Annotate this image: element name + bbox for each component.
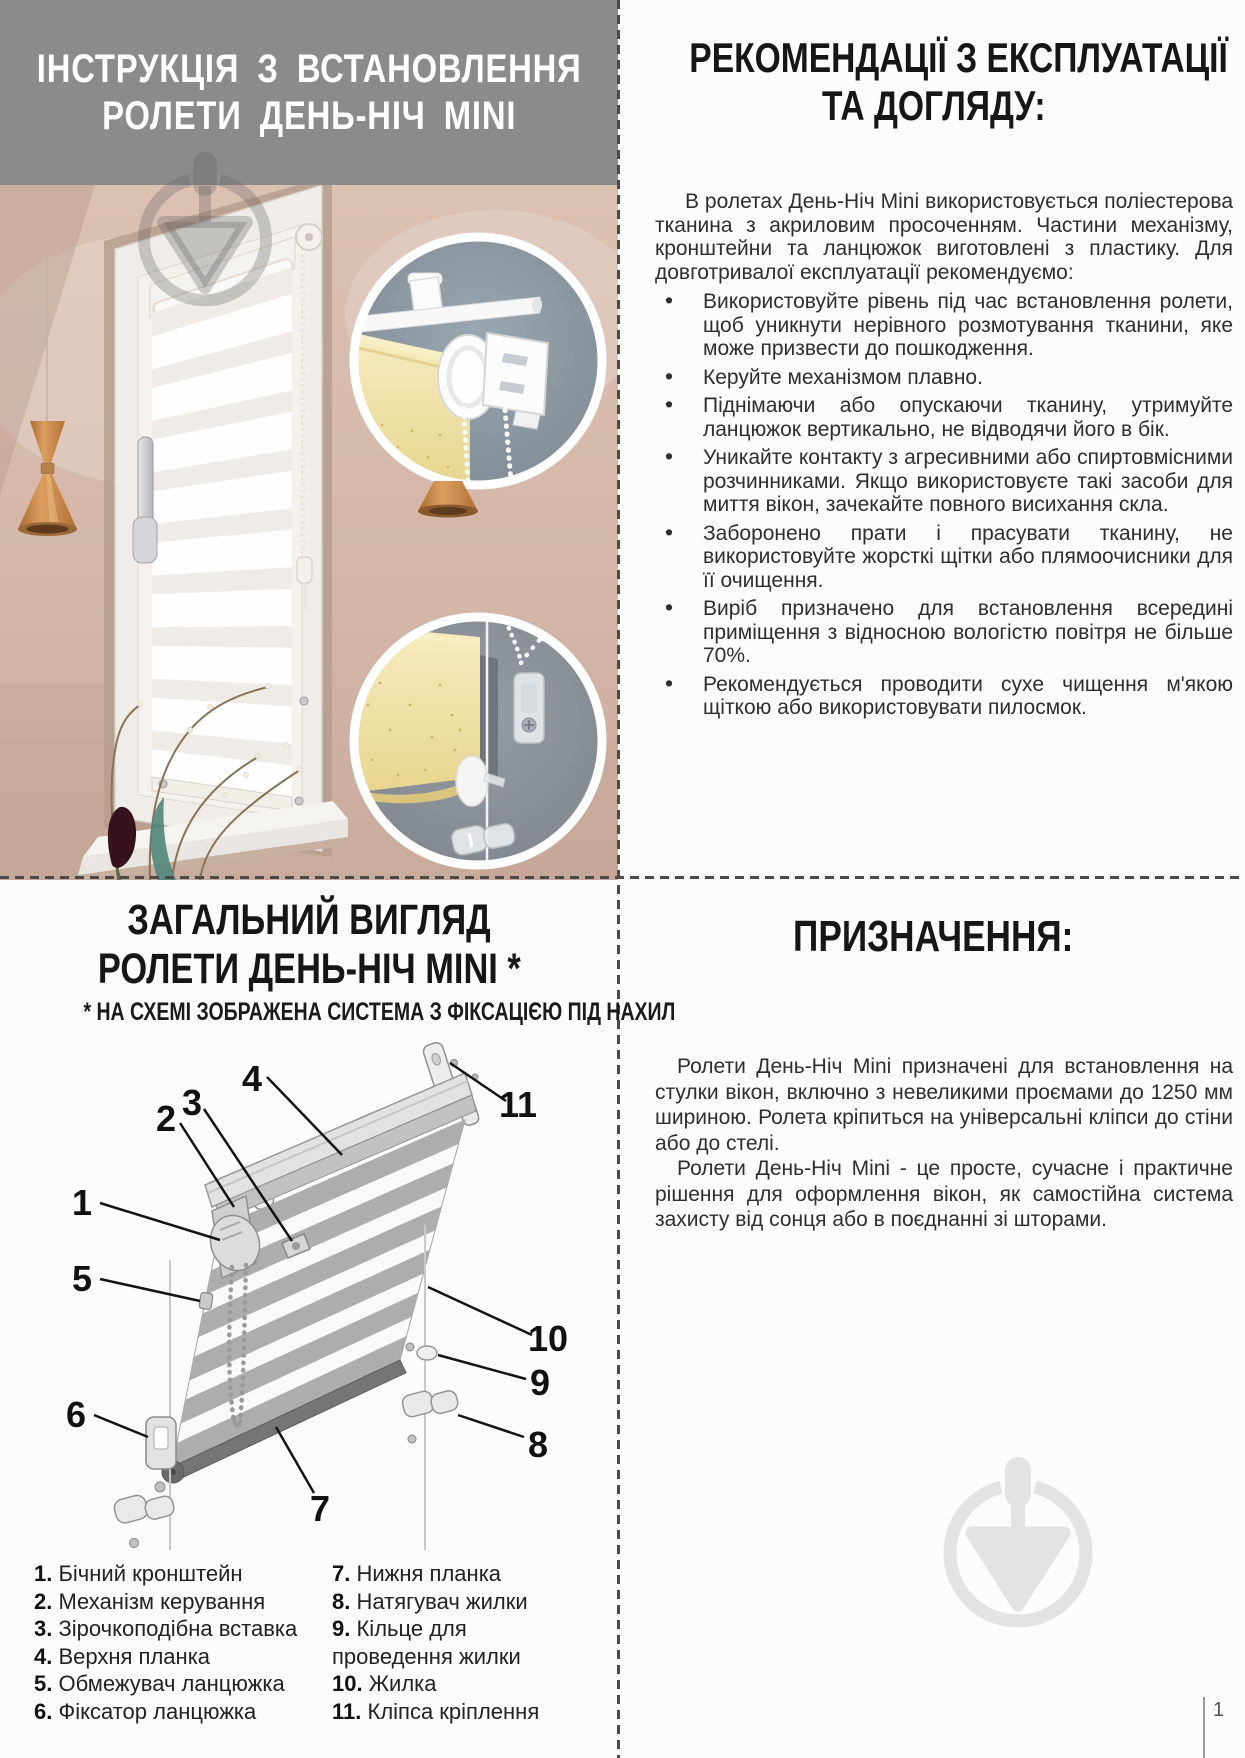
legend-item: 4. Верхня планка xyxy=(34,1643,326,1671)
install-title-banner: ІНСТРУКЦІЯ З ВСТАНОВЛЕННЯ РОЛЕТИ ДЕНЬ-НІ… xyxy=(0,0,618,185)
overview-title-line2: РОЛЕТИ ДЕНЬ-НІЧ MINI * xyxy=(98,945,521,994)
part-number-6: 6 xyxy=(66,1394,86,1435)
list-item: Піднімаючи або опускаючи тканину, утриму… xyxy=(655,394,1233,441)
purpose-paragraph-1: Ролети День-Ніч Mini призначені для вста… xyxy=(655,1054,1233,1156)
instruction-page: ІНСТРУКЦІЯ З ВСТАНОВЛЕННЯ РОЛЕТИ ДЕНЬ-НІ… xyxy=(0,0,1245,1758)
part-number-5: 5 xyxy=(72,1258,92,1299)
purpose-title: ПРИЗНАЧЕННЯ: xyxy=(622,912,1245,962)
legend-item: 2. Механізм керування xyxy=(34,1588,326,1616)
page-number: 1 xyxy=(1213,1699,1224,1722)
legend-item: 9. Кільце для проведення жилки xyxy=(332,1615,594,1670)
list-item: Керуйте механізмом плавно. xyxy=(655,366,1233,390)
legend-item: 1. Бічний кронштейн xyxy=(34,1560,326,1588)
legend-item: 6. Фіксатор ланцюжка xyxy=(34,1698,326,1726)
inset-photo-mechanism xyxy=(350,233,606,489)
page-edge-tick xyxy=(1203,1697,1205,1758)
part-number-9: 9 xyxy=(530,1362,550,1403)
list-item: Заборонено прати і прасувати тканину, не… xyxy=(655,522,1233,593)
overview-title: ЗАГАЛЬНИЙ ВИГЛЯД РОЛЕТИ ДЕНЬ-НІЧ MINI * xyxy=(0,896,618,994)
legend-item: 11. Кліпса кріплення xyxy=(332,1698,594,1726)
overview-note: * НА СХЕМІ ЗОБРАЖЕНА СИСТЕМА З ФІКСАЦІЄЮ… xyxy=(0,998,618,1027)
part-number-8: 8 xyxy=(528,1424,548,1465)
legend-item: 7. Нижня планка xyxy=(332,1560,594,1588)
list-item: Уникайте контакту з агресивними або спир… xyxy=(655,446,1233,517)
purpose-section: Ролети День-Ніч Mini призначені для вста… xyxy=(655,1054,1233,1233)
list-item: Рекомендується проводити сухе чищення м'… xyxy=(655,673,1233,720)
part-number-1: 1 xyxy=(72,1182,92,1223)
legend-item: 8. Натягувач жилки xyxy=(332,1588,594,1616)
inset-photo-tensioner xyxy=(350,613,606,869)
part-number-2: 2 xyxy=(156,1098,176,1139)
brand-watermark-icon xyxy=(138,148,272,330)
recommendations-intro: В ролетах День-Ніч Mini використовується… xyxy=(655,190,1233,284)
legend-item: 3. Зірочкоподібна вставка xyxy=(34,1615,326,1643)
install-title-line1: ІНСТРУКЦІЯ З ВСТАНОВЛЕННЯ xyxy=(37,46,582,93)
blind-parts-diagram: 1 2 3 4 5 6 7 8 9 10 11 xyxy=(20,1035,600,1565)
install-title: ІНСТРУКЦІЯ З ВСТАНОВЛЕННЯ РОЛЕТИ ДЕНЬ-НІ… xyxy=(37,46,582,140)
recommendations-title-line1: РЕКОМЕНДАЦІЇ З ЕКСПЛУАТАЦІЇ xyxy=(689,34,1227,82)
purpose-paragraph-2: Ролети День-Ніч Mini - це просте, сучасн… xyxy=(655,1156,1233,1233)
overview-title-line1: ЗАГАЛЬНИЙ ВИГЛЯД xyxy=(127,896,490,945)
part-number-4: 4 xyxy=(242,1058,262,1099)
recommendations-title: РЕКОМЕНДАЦІЇ З ЕКСПЛУАТАЦІЇ ТА ДОГЛЯДУ: xyxy=(622,34,1245,130)
recommendations-list: Використовуйте рівень під час встановлен… xyxy=(655,290,1233,725)
part-number-11: 11 xyxy=(499,1084,537,1125)
part-number-7: 7 xyxy=(310,1488,330,1529)
window-photo xyxy=(0,185,618,880)
recommendations-section: РЕКОМЕНДАЦІЇ З ЕКСПЛУАТАЦІЇ ТА ДОГЛЯДУ: … xyxy=(622,0,1245,876)
legend-item: 10. Жилка xyxy=(332,1670,594,1698)
install-title-line2: РОЛЕТИ ДЕНЬ-НІЧ MINI xyxy=(37,93,582,140)
column-divider xyxy=(617,0,620,1758)
brand-watermark-icon xyxy=(930,1455,1110,1660)
row-divider xyxy=(0,876,1245,879)
part-number-10: 10 xyxy=(528,1318,568,1359)
legend-column-2: 7. Нижня планка 8. Натягувач жилки 9. Кі… xyxy=(332,1560,594,1725)
list-item: Використовуйте рівень під час встановлен… xyxy=(655,290,1233,361)
recommendations-title-line2: ТА ДОГЛЯДУ: xyxy=(822,82,1046,130)
part-number-3: 3 xyxy=(182,1082,202,1123)
legend-item: 5. Обмежувач ланцюжка xyxy=(34,1670,326,1698)
list-item: Виріб призначено для встановлення всеред… xyxy=(655,597,1233,668)
legend-column-1: 1. Бічний кронштейн 2. Механізм керуванн… xyxy=(34,1560,326,1725)
